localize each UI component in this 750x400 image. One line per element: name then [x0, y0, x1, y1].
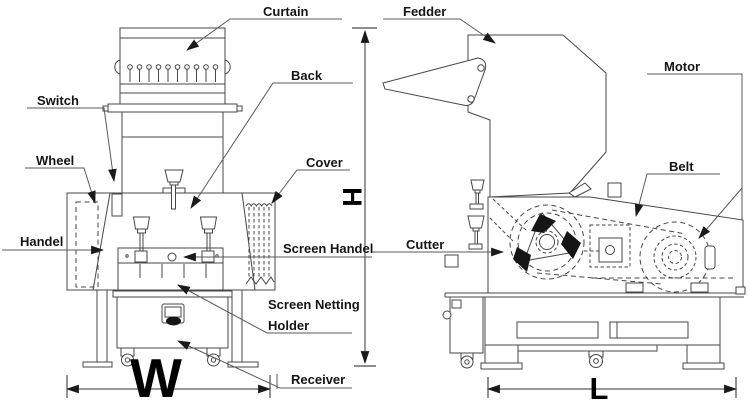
front-leg-left [97, 290, 107, 362]
length-letter: L [590, 371, 609, 400]
receiver-latch [162, 304, 184, 326]
bearing-block [590, 225, 630, 267]
side-receiver-drawer [443, 297, 483, 368]
motor-foot-right [691, 283, 708, 292]
label-switch: Switch [37, 93, 79, 108]
drawer-handle [443, 311, 451, 319]
side-leg-right [687, 345, 720, 363]
guard-top-block [608, 183, 621, 197]
leader-belt [636, 174, 720, 216]
base-right-bolt [736, 287, 745, 294]
feeder-tray [383, 58, 486, 105]
hopper-side-clip-left [115, 60, 120, 74]
label-screen-netting: Screen Netting [268, 297, 360, 312]
side-hopper-outline [468, 35, 606, 197]
hopper-side-clip-right [225, 60, 230, 74]
front-foot-left [83, 362, 112, 367]
front-hopper-sides [120, 84, 225, 105]
side-leg-left [485, 345, 518, 363]
switch-box [112, 194, 122, 216]
screen-netting-holder [118, 248, 223, 291]
leader-switch [27, 108, 114, 181]
accordion-cover [246, 204, 274, 284]
front-leg-right [232, 290, 242, 362]
width-letter: W [130, 347, 182, 400]
side-lever-lower [445, 216, 484, 267]
side-foot-right [683, 363, 724, 369]
label-back: Back [291, 68, 323, 83]
side-base [445, 287, 745, 369]
side-lever-upper [470, 180, 484, 209]
wheel-housing-dashed-panel [76, 202, 98, 287]
motor-foot-left [626, 283, 643, 292]
rotor-blade-top [531, 214, 556, 233]
machine-diagram: W H [0, 0, 750, 400]
label-curtain: Curtain [263, 4, 309, 19]
label-fedder: Fedder [403, 4, 446, 19]
height-letter: H [337, 187, 367, 207]
label-handel: Handel [20, 234, 63, 249]
side-foot-left [481, 363, 522, 369]
base-caster-center [589, 351, 603, 368]
label-cover: Cover [306, 155, 343, 170]
cutter-rotor [510, 205, 584, 279]
motor-end-cap [705, 246, 715, 269]
height-dimension: H [337, 28, 377, 366]
base-cross-bar [518, 345, 657, 351]
label-screen-handel: Screen Handel [283, 241, 373, 256]
front-flange [108, 104, 237, 112]
side-switch-box [445, 255, 458, 267]
front-band [113, 291, 232, 297]
label-motor: Motor [664, 59, 700, 74]
side-view: L [383, 35, 745, 400]
label-belt: Belt [669, 159, 694, 174]
lever-handle-right [201, 217, 217, 255]
leader-wheel [25, 168, 95, 203]
leader-motor-line [647, 74, 742, 220]
label-wheel: Wheel [36, 153, 74, 168]
label-receiver: Receiver [291, 372, 345, 387]
front-hopper-outline [120, 28, 225, 84]
lever-nut-left [135, 251, 147, 262]
front-view: W H [67, 28, 377, 400]
lever-handle-left [134, 217, 150, 255]
chute-dashed-lines [490, 199, 527, 241]
screen-comb-ticks [140, 264, 206, 278]
leader-motor-arrow [699, 188, 742, 238]
label-holder: Holder [268, 318, 309, 333]
leader-curtain [187, 19, 342, 50]
screen-handle-knob [168, 253, 176, 261]
length-dimension: L [488, 371, 736, 400]
leader-back [191, 83, 353, 208]
label-cutter: Cutter [406, 237, 444, 252]
rotor-blade-right [561, 231, 581, 259]
top-clamp-knob [163, 170, 185, 209]
curtain-strips [115, 60, 231, 82]
front-flange-tab-right [237, 106, 242, 111]
diagram-canvas: W H [0, 0, 750, 400]
